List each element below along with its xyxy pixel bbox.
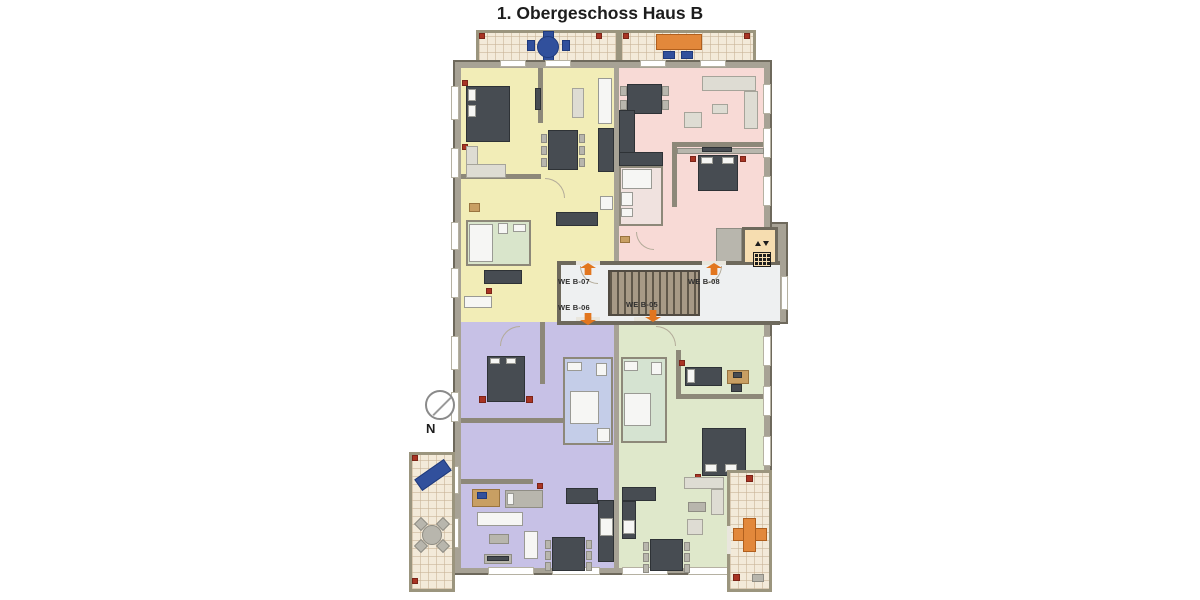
flower-pot-icon xyxy=(596,33,602,39)
unit-label-we-b-06: WE B-06 xyxy=(558,303,590,312)
pillow xyxy=(468,89,476,101)
patio-chair xyxy=(562,40,570,51)
compass-icon xyxy=(425,390,455,420)
pillow xyxy=(722,157,734,164)
ottoman xyxy=(712,104,728,114)
chair xyxy=(731,384,742,392)
corner-sofa xyxy=(702,76,756,91)
chair xyxy=(620,100,627,110)
flower-pot-icon xyxy=(412,578,418,584)
chair xyxy=(541,146,547,155)
fridge xyxy=(600,196,613,210)
flower-pot-icon xyxy=(744,33,750,39)
corner-sofa xyxy=(711,489,724,515)
window xyxy=(451,148,459,178)
chair xyxy=(643,564,649,573)
balcony-door xyxy=(700,60,726,67)
chair xyxy=(662,86,669,96)
unit-label-we-b-08: WE B-08 xyxy=(688,277,720,286)
elevator-down-arrow-icon xyxy=(763,241,769,246)
cabinet xyxy=(469,203,480,212)
chair xyxy=(586,551,592,560)
laptop xyxy=(477,492,487,499)
tv xyxy=(535,88,541,110)
chair xyxy=(579,158,585,167)
nightstand-lamp xyxy=(479,396,486,403)
chair xyxy=(579,134,585,143)
pillow xyxy=(507,493,514,505)
wall xyxy=(676,350,681,399)
window xyxy=(488,567,534,575)
chair xyxy=(586,540,592,549)
pillow xyxy=(468,105,476,117)
pillow xyxy=(506,358,516,364)
patio-bench xyxy=(752,574,764,582)
tv xyxy=(487,556,509,561)
bathtub xyxy=(469,224,493,262)
toilet xyxy=(596,363,607,376)
unit-label-we-b-07: WE B-07 xyxy=(558,277,590,286)
flower-pot-icon xyxy=(412,455,418,461)
wardrobe xyxy=(466,164,506,178)
chair xyxy=(541,134,547,143)
chair xyxy=(684,542,690,551)
window xyxy=(781,276,788,310)
chair xyxy=(545,562,551,571)
nightstand-lamp xyxy=(679,360,685,366)
balcony-door xyxy=(545,60,571,67)
cabinet xyxy=(464,296,492,308)
flower-pot-icon xyxy=(746,475,753,482)
north-label: N xyxy=(426,421,435,436)
elevator-car-icon xyxy=(753,252,771,267)
chair xyxy=(643,542,649,551)
corner-sofa xyxy=(744,91,758,129)
toilet xyxy=(498,223,508,234)
window xyxy=(763,128,771,158)
patio-table xyxy=(537,36,559,58)
armchair xyxy=(684,112,702,128)
sink xyxy=(513,224,526,232)
pillow xyxy=(701,157,713,164)
window xyxy=(451,222,459,250)
dining-table xyxy=(552,537,585,571)
elevator-icon xyxy=(751,233,773,259)
chair xyxy=(684,564,690,573)
armchair xyxy=(687,519,703,535)
patio-chair xyxy=(527,40,535,51)
coffee-table xyxy=(489,534,509,544)
window xyxy=(763,436,771,466)
patio-table xyxy=(743,518,756,552)
sideboard xyxy=(572,88,584,118)
nightstand-lamp xyxy=(526,396,533,403)
dining-table xyxy=(548,130,578,170)
flower-pot-icon xyxy=(486,288,492,294)
window xyxy=(763,84,771,114)
window xyxy=(763,336,771,366)
toilet xyxy=(621,192,633,206)
window xyxy=(451,268,459,298)
shower xyxy=(570,391,599,424)
patio-chair xyxy=(663,51,675,59)
armchair xyxy=(524,531,538,559)
chair xyxy=(579,146,585,155)
wall xyxy=(676,394,766,399)
chair xyxy=(541,158,547,167)
balcony-door xyxy=(500,60,526,67)
chair xyxy=(684,553,690,562)
sofa xyxy=(477,512,523,526)
pillow xyxy=(490,358,500,364)
page-title: 1. Obergeschoss Haus B xyxy=(0,3,1200,24)
nightstand-lamp xyxy=(690,156,696,162)
flower-pot-icon xyxy=(623,33,629,39)
balcony-door xyxy=(727,526,731,554)
chair xyxy=(545,551,551,560)
nightstand-lamp xyxy=(740,156,746,162)
toilet xyxy=(651,362,662,375)
floor-plan: 1. Obergeschoss Haus B xyxy=(0,0,1200,600)
window xyxy=(451,86,459,120)
dining-table xyxy=(650,539,683,571)
cabinet xyxy=(620,236,630,243)
chair xyxy=(586,562,592,571)
patio-chair xyxy=(681,51,693,59)
sink xyxy=(567,362,582,371)
pillow xyxy=(687,369,695,383)
patio-table xyxy=(656,34,702,50)
sink xyxy=(624,361,638,371)
staircase-icon xyxy=(608,270,700,316)
kitchen-counter xyxy=(556,212,598,226)
corner-sofa xyxy=(684,477,724,489)
wall xyxy=(461,418,563,423)
chair xyxy=(620,86,627,96)
nightstand-lamp xyxy=(537,483,543,489)
patio-table xyxy=(422,525,442,545)
flower-pot-icon xyxy=(479,33,485,39)
wall xyxy=(672,147,677,207)
coffee-table xyxy=(688,502,706,512)
window xyxy=(763,386,771,416)
bathtub xyxy=(622,169,652,189)
chair xyxy=(643,553,649,562)
shelf xyxy=(598,78,612,124)
balcony-door xyxy=(640,60,666,67)
desk xyxy=(484,270,522,284)
window xyxy=(763,176,771,206)
wall xyxy=(461,479,533,484)
kitchen-counter xyxy=(619,152,663,166)
oven xyxy=(600,518,613,536)
pillow xyxy=(705,464,717,472)
oven xyxy=(623,520,635,534)
kitchen-counter xyxy=(598,128,614,172)
flower-pot-icon xyxy=(733,574,740,581)
unit-label-we-b-05: WE B-05 xyxy=(626,300,658,309)
laptop xyxy=(733,372,742,378)
washing-machine xyxy=(597,428,610,442)
storage xyxy=(716,228,742,262)
tv xyxy=(702,147,732,152)
kitchen-counter xyxy=(622,487,656,501)
kitchen-counter xyxy=(566,488,598,504)
window xyxy=(451,336,459,370)
shower xyxy=(624,393,651,426)
compass-needle xyxy=(432,397,451,416)
wall xyxy=(540,322,545,384)
sink xyxy=(621,208,633,217)
chair xyxy=(545,540,551,549)
chair xyxy=(662,100,669,110)
elevator-up-arrow-icon xyxy=(755,241,761,246)
